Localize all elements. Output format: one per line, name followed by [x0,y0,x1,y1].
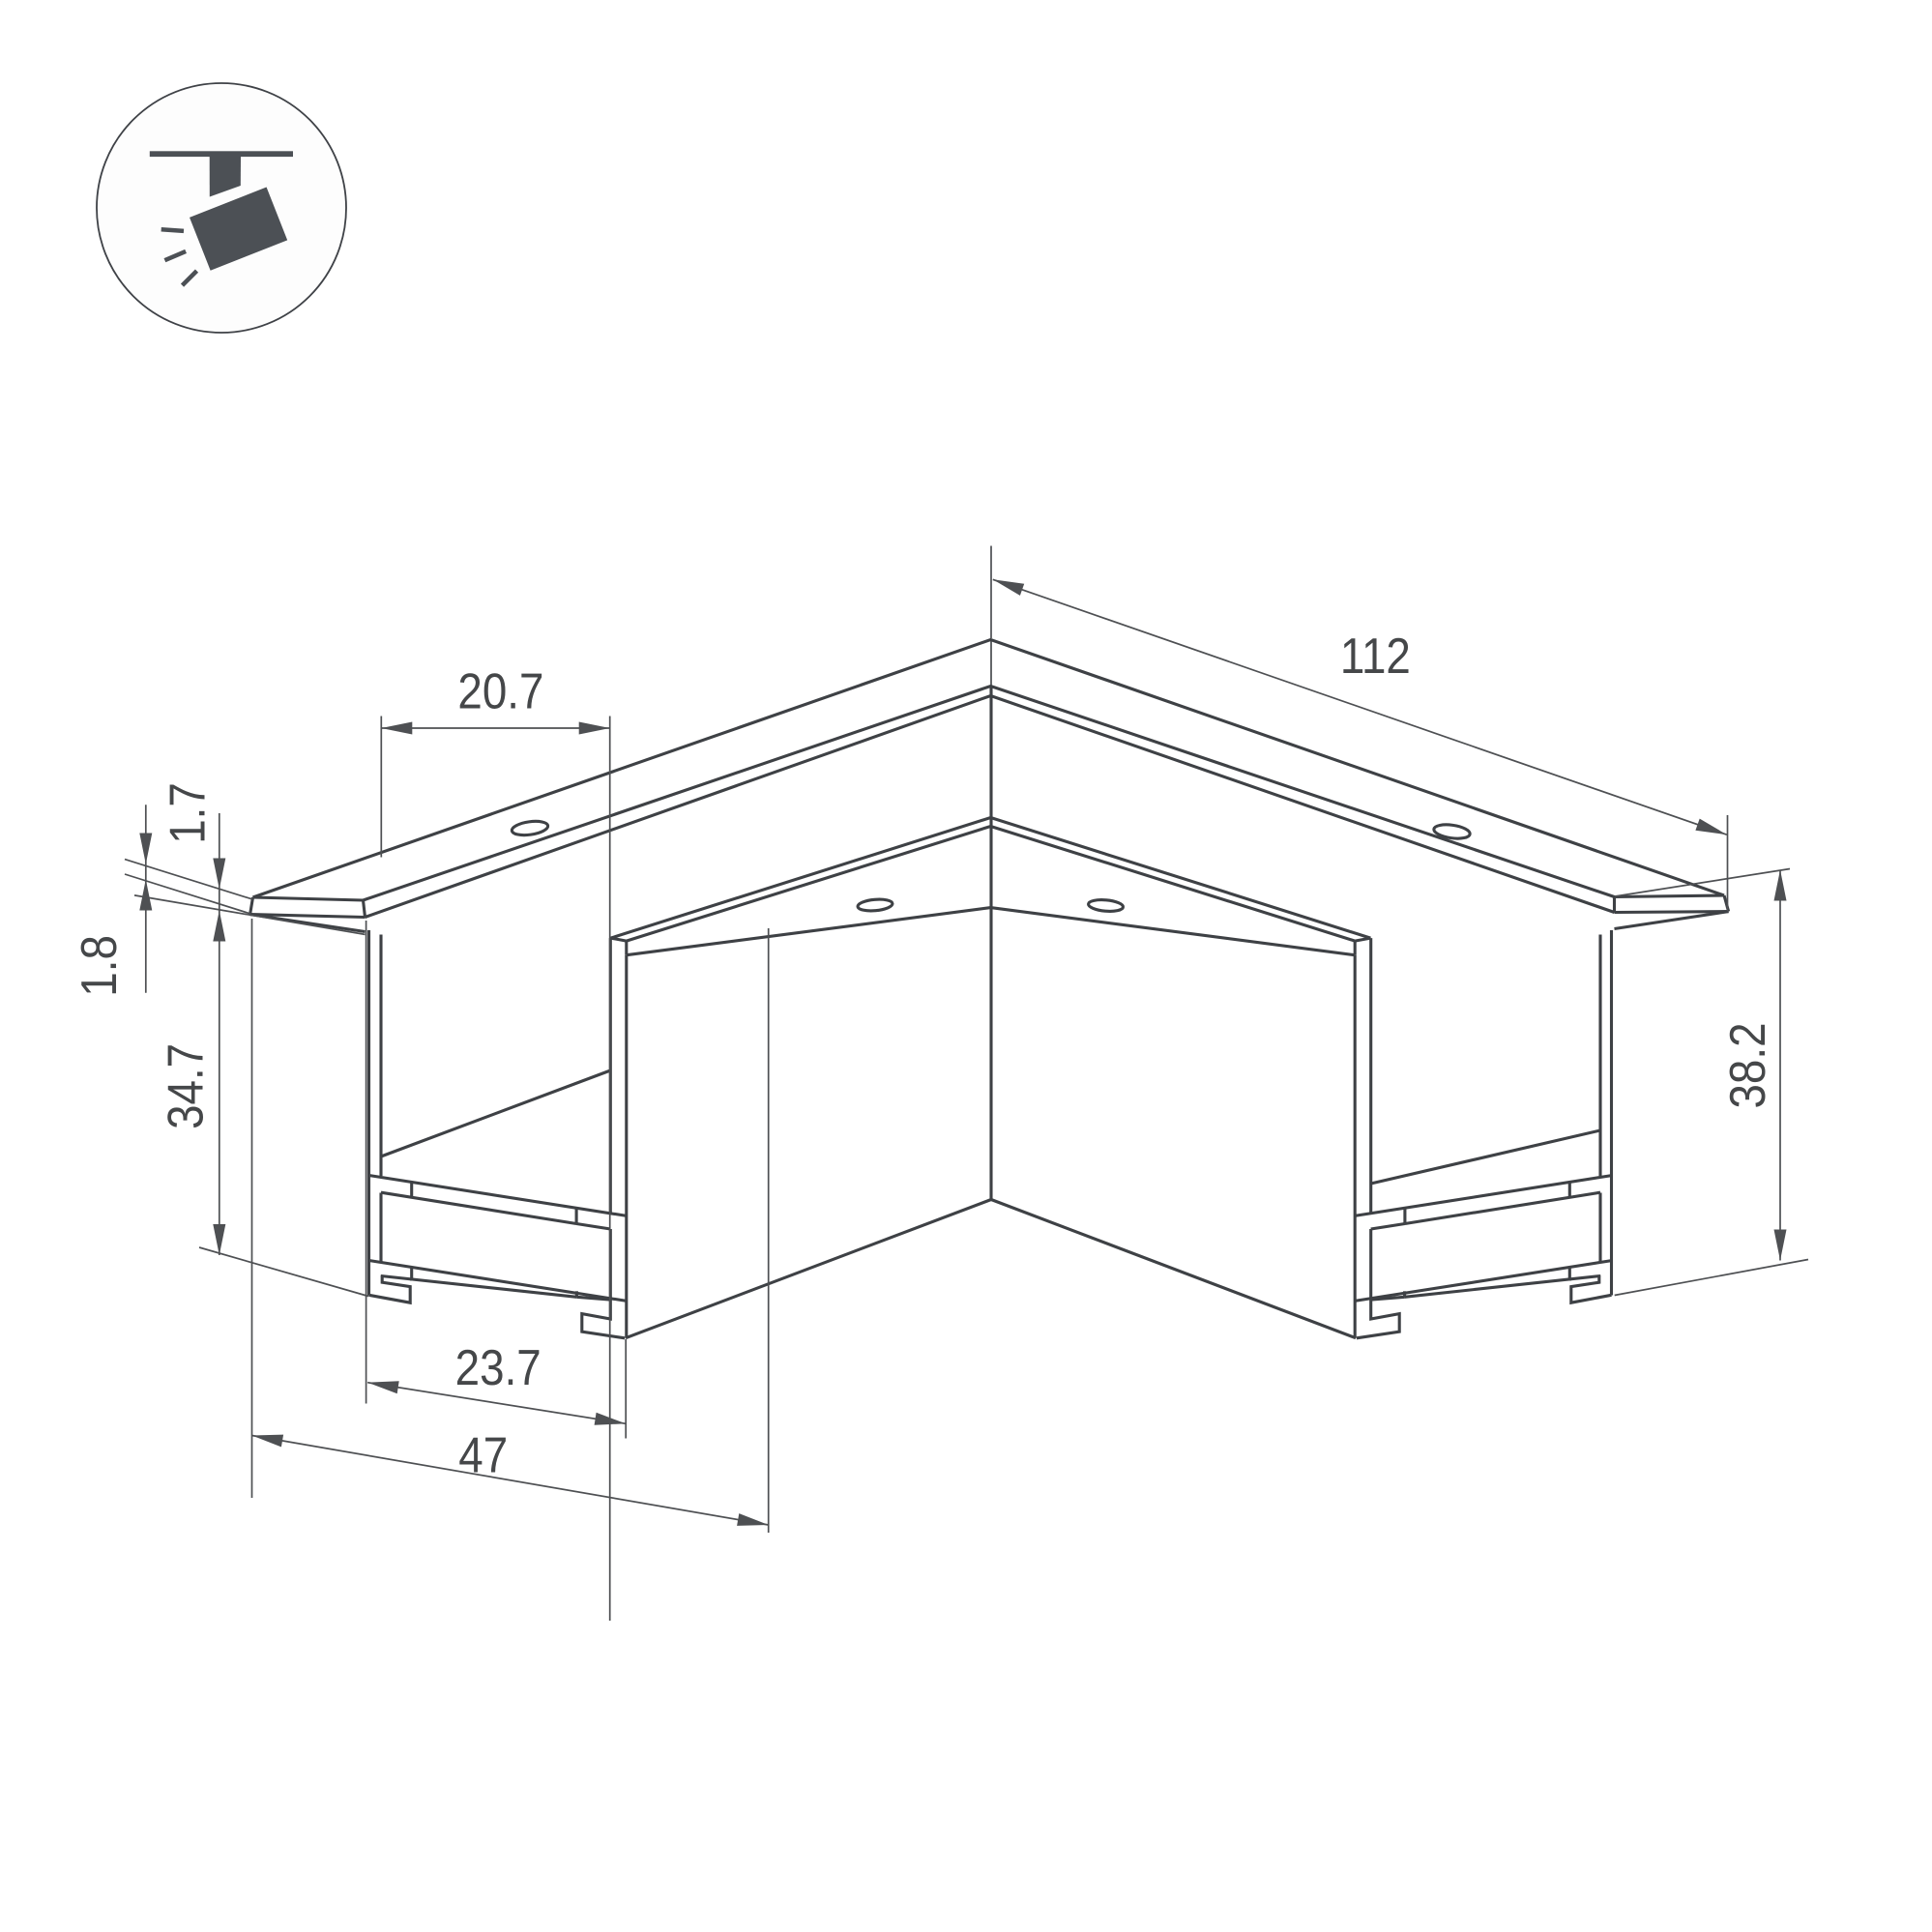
svg-text:1.7: 1.7 [161,782,216,844]
svg-text:1.8: 1.8 [73,935,128,997]
svg-text:23.7: 23.7 [455,1340,542,1395]
svg-text:38.2: 38.2 [1721,1022,1776,1108]
svg-text:34.7: 34.7 [159,1043,214,1129]
svg-text:20.7: 20.7 [457,664,543,719]
svg-text:47: 47 [458,1428,508,1483]
svg-text:112: 112 [1340,629,1411,684]
